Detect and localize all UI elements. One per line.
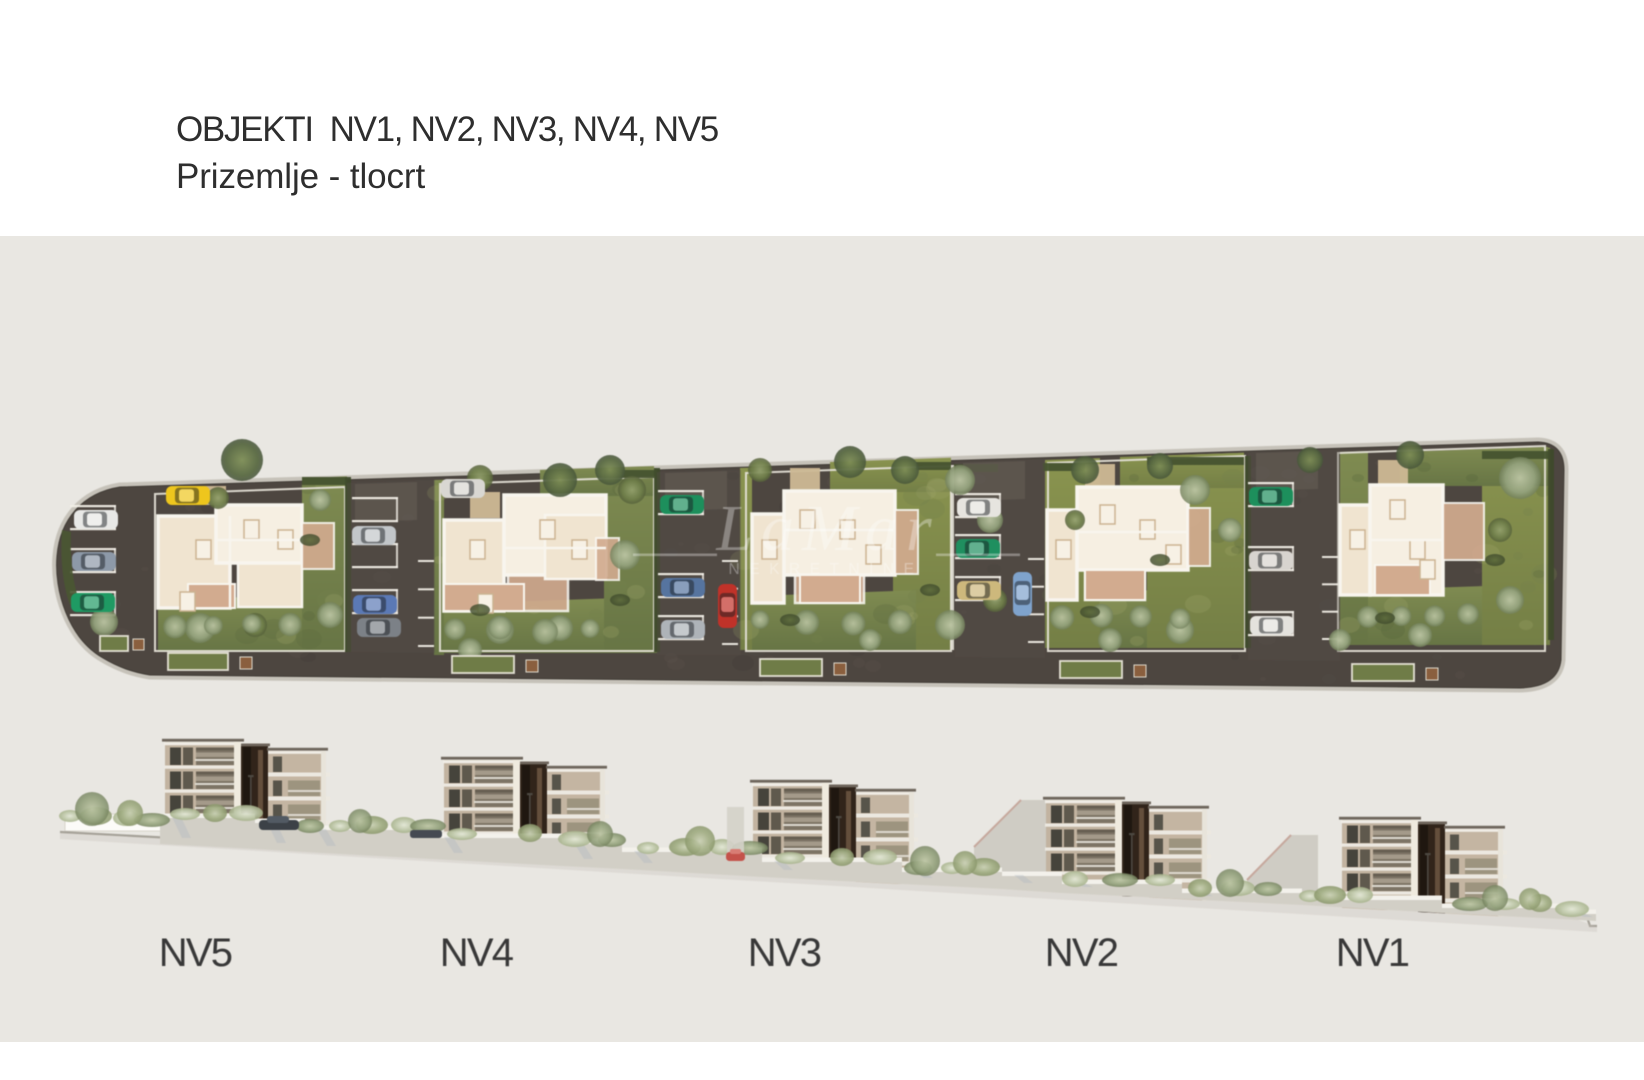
svg-text:NEKRETNINE: NEKRETNINE: [729, 561, 924, 578]
svg-text:NV2: NV2: [1045, 931, 1118, 975]
svg-text:NV4: NV4: [440, 931, 514, 975]
svg-text:NV5: NV5: [159, 931, 232, 975]
svg-text:NV1: NV1: [1336, 931, 1409, 975]
svg-text:NV3: NV3: [748, 931, 821, 975]
svg-text:LaMar: LaMar: [715, 492, 939, 565]
